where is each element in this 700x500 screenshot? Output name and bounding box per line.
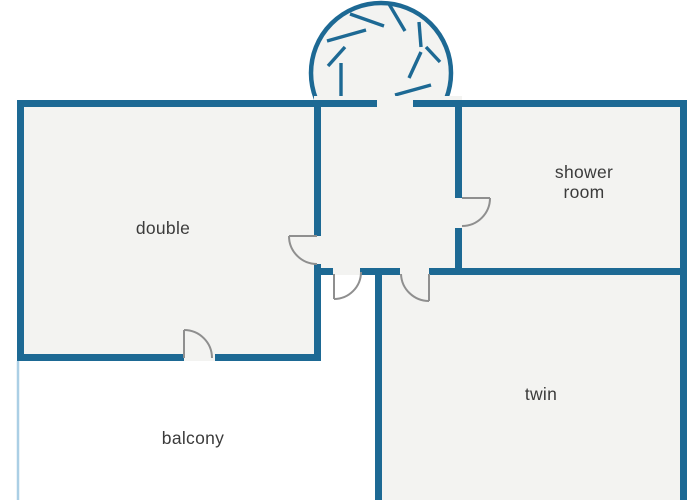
wall-twin-left bbox=[375, 268, 382, 500]
floor-plan-drawing bbox=[0, 0, 700, 500]
door-arc bbox=[334, 272, 361, 299]
wall-hall-bottom-a bbox=[314, 268, 333, 275]
wall-double-right-b bbox=[314, 264, 321, 361]
wall-shower-left-b bbox=[455, 228, 462, 275]
room-label-balcony: balcony bbox=[143, 428, 243, 448]
room-label-twin: twin bbox=[491, 384, 591, 404]
door-hall-to-balcony bbox=[334, 272, 361, 299]
wall-shower-left-a bbox=[455, 100, 462, 198]
wall-top-left bbox=[17, 100, 377, 107]
wall-right bbox=[680, 100, 687, 500]
hallway-floor bbox=[314, 96, 462, 275]
wall-double-bottom-b bbox=[215, 354, 321, 361]
wall-double-bottom-a bbox=[17, 354, 184, 361]
room-floors bbox=[17, 96, 687, 500]
wall-double-right-a bbox=[314, 100, 321, 236]
wall-mid-right bbox=[429, 268, 687, 275]
room-label-double: double bbox=[103, 218, 223, 238]
wall-top-right bbox=[413, 100, 687, 107]
stair-tread bbox=[419, 22, 421, 47]
wall-left bbox=[17, 100, 24, 361]
floor-plan: double shower room twin balcony bbox=[0, 0, 700, 500]
room-label-shower-room: shower room bbox=[547, 162, 621, 202]
